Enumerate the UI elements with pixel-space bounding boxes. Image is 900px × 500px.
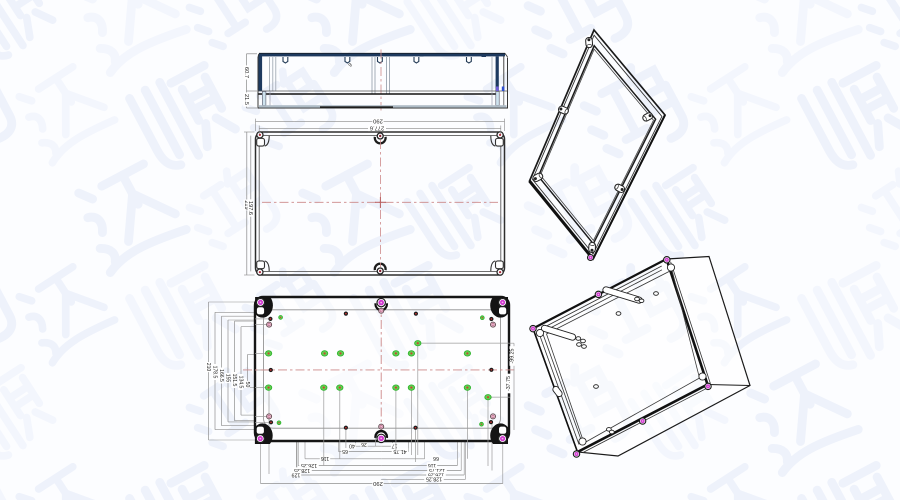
svg-text:290: 290	[373, 118, 383, 124]
svg-text:128.25: 128.25	[426, 476, 442, 482]
svg-text:129: 129	[292, 471, 301, 477]
svg-text:50: 50	[244, 382, 250, 388]
svg-text:277.6: 277.6	[370, 125, 385, 131]
svg-text:66: 66	[433, 455, 439, 461]
svg-text:116: 116	[321, 455, 329, 461]
svg-text:155: 155	[224, 374, 230, 383]
svg-text:65: 65	[342, 448, 348, 454]
svg-text:210: 210	[205, 363, 211, 372]
svg-text:166.5: 166.5	[218, 369, 224, 382]
svg-text:17: 17	[392, 443, 398, 449]
svg-text:134.5: 134.5	[237, 376, 243, 389]
svg-text:151.5: 151.5	[231, 374, 237, 387]
svg-text:21.5: 21.5	[243, 94, 249, 105]
svg-text:-99.25: -99.25	[510, 348, 516, 363]
svg-text:40: 40	[349, 443, 355, 449]
svg-text:60.7: 60.7	[243, 67, 249, 78]
svg-text:-37.75: -37.75	[506, 376, 512, 391]
svg-text:197.6: 197.6	[247, 201, 253, 215]
svg-text:178.5: 178.5	[211, 366, 217, 379]
svg-text:290: 290	[373, 480, 383, 486]
